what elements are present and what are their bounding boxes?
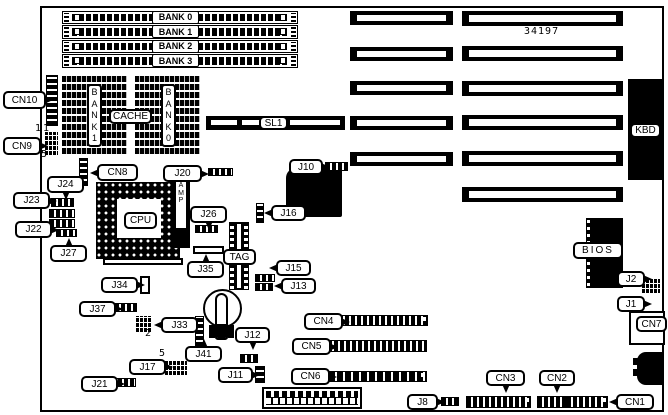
label-text: J20 (174, 168, 190, 179)
isa-slot-channel (469, 85, 616, 92)
label-text: CN5 (301, 341, 321, 352)
label-text: J26 (200, 209, 216, 220)
label-text: CN4 (313, 316, 333, 327)
isa-slot-channel (469, 191, 616, 198)
label-pointer (154, 321, 163, 329)
label-text: J24 (57, 179, 73, 190)
label-text: J15 (285, 263, 301, 274)
simm-slot-bank0: BANK 0 (62, 11, 298, 25)
battery-clamp-right (228, 325, 234, 338)
label-j21: J21 (81, 376, 118, 392)
j35-pins (193, 246, 224, 254)
j20-pins (208, 168, 233, 176)
isa-slot-left-3 (350, 81, 453, 95)
pin-marker-1: 1 (35, 123, 41, 134)
label-pointer (65, 238, 73, 247)
label-pointer (502, 384, 510, 393)
label-cpu: CPU (124, 212, 157, 229)
label-text: J33 (171, 320, 187, 331)
battery-capsule-fill (217, 324, 226, 338)
label-cache: CACHE (109, 109, 152, 124)
simm-edge-pins (291, 56, 296, 66)
pin-marker-5: 5 (159, 348, 165, 359)
isa-slot-channel (357, 15, 446, 21)
label-text: J12 (244, 330, 260, 341)
label-j17: J17 (129, 359, 166, 375)
label-j35: J35 (187, 261, 224, 278)
label-text: J23 (23, 195, 39, 206)
label-sl1: SL1 (259, 116, 288, 130)
label-text: J1 (626, 299, 637, 310)
label-pointer (90, 169, 99, 177)
cache-bank0-label: B A N K 0 (161, 84, 176, 147)
part-number: 34197 (524, 26, 559, 37)
label-j16: J16 (271, 205, 306, 221)
label-pointer (164, 363, 173, 371)
label-cn7: CN7 (636, 316, 667, 332)
isa-slot-left-4 (350, 116, 453, 130)
label-pointer (329, 343, 338, 351)
label-pointer (249, 341, 257, 350)
label-pointer (436, 398, 445, 406)
label-text: CN7 (641, 319, 661, 330)
power-connector (262, 387, 362, 409)
isa-slot-right-1 (462, 11, 623, 26)
label-pointer (609, 398, 618, 406)
j23-pins (49, 209, 75, 218)
label-text: CPU (130, 215, 151, 226)
cn6-pins (328, 371, 427, 382)
motherboard-diagram: B A N K 1 B A N K 0 A M P (0, 0, 668, 415)
isa-slot-right-4 (462, 115, 623, 130)
label-j26: J26 (190, 206, 227, 223)
label-text: CN9 (12, 141, 32, 152)
simm-latch (74, 43, 80, 50)
label-text: J8 (417, 397, 428, 408)
label-pointer (62, 191, 70, 200)
simm-edge-pins (291, 42, 296, 52)
label-text: J21 (91, 379, 107, 390)
label-text: CN8 (107, 167, 127, 178)
isa-slot-right-5 (462, 151, 623, 166)
label-j13: J13 (281, 278, 316, 294)
isa-slot-right-3 (462, 81, 623, 96)
battery-capsule (215, 293, 228, 340)
simm-slot-bank1: BANK 1 (62, 25, 298, 39)
simm-bank-label: BANK 3 (152, 54, 199, 67)
label-text: CN1 (625, 397, 645, 408)
label-pointer (328, 373, 337, 381)
isa-slot-channel (469, 15, 616, 22)
simm-latch (74, 57, 80, 64)
label-cn10: CN10 (3, 91, 46, 109)
isa-slot-right-6 (462, 187, 623, 202)
label-text: SL1 (265, 118, 283, 129)
simm-edge-pins (291, 13, 296, 23)
label-text: J2 (626, 274, 637, 285)
amp-label: A M P (176, 180, 186, 205)
isa-slot-left-5 (350, 152, 453, 166)
label-pointer (341, 318, 350, 326)
label-pointer (643, 300, 652, 308)
isa-slot-channel (357, 156, 446, 162)
battery-clamp-left (209, 325, 215, 338)
label-j15: J15 (276, 260, 311, 276)
pin-marker-1: 1 (43, 123, 49, 134)
label-text: CN3 (495, 373, 515, 384)
simm-slot-bank2: BANK 2 (62, 40, 298, 54)
label-j8: J8 (407, 394, 438, 410)
label-kbd: KBD (630, 123, 661, 138)
label-cn3: CN3 (486, 370, 525, 386)
simm-slot-bank3: BANK 3 (62, 54, 298, 68)
isa-slot-channel (357, 85, 446, 91)
label-text: J37 (89, 304, 105, 315)
isa-slot-left-2 (350, 47, 453, 61)
label-text: CN2 (547, 373, 567, 384)
label-pointer (251, 371, 260, 379)
label-pointer (44, 96, 53, 104)
label-pointer (200, 170, 209, 178)
label-j41: J41 (185, 346, 222, 362)
simm-edge-pins (64, 42, 69, 52)
pin-marker-2: 2 (145, 328, 151, 339)
label-pointer (274, 282, 283, 290)
amp-connector: A M P (172, 180, 190, 248)
label-pointer (116, 380, 125, 388)
j13-pins (255, 283, 273, 291)
simm-edge-pins (64, 27, 69, 37)
label-pointer (50, 226, 59, 234)
label-text: CACHE (113, 111, 148, 122)
label-pointer (136, 281, 145, 289)
label-text: J11 (228, 370, 243, 381)
label-text: BIOS (582, 245, 614, 256)
label-j11: J11 (218, 367, 253, 383)
label-text: J10 (298, 162, 314, 173)
pin-marker-5: 5 (41, 149, 47, 160)
label-pointer (205, 221, 213, 230)
label-text: CN10 (12, 95, 38, 106)
label-text: J17 (139, 362, 155, 373)
label-bios: BIOS (573, 242, 623, 259)
label-text: J35 (197, 264, 213, 275)
label-pointer (269, 264, 278, 272)
label-pointer (200, 339, 208, 348)
label-j27: J27 (50, 245, 87, 262)
label-pointer (114, 305, 123, 313)
label-cn4: CN4 (304, 313, 343, 330)
label-j24: J24 (47, 176, 84, 193)
label-cn8: CN8 (97, 164, 138, 181)
simm-edge-pins (64, 56, 69, 66)
sl1-slot-segment (211, 120, 237, 125)
label-j34: J34 (101, 277, 138, 293)
label-text: J16 (280, 208, 296, 219)
label-text: CN6 (300, 371, 320, 382)
isa-slot-channel (357, 51, 446, 57)
label-pointer (48, 197, 57, 205)
label-j2: J2 (617, 271, 645, 287)
label-j10: J10 (289, 159, 323, 175)
label-pointer (643, 275, 652, 283)
isa-slot-channel (357, 120, 446, 126)
cn4-pins (338, 315, 428, 326)
label-cn2: CN2 (539, 370, 575, 386)
isa-slot-channel (469, 119, 616, 126)
label-j20: J20 (163, 165, 202, 182)
isa-slot-right-2 (462, 46, 623, 61)
simm-edge-pins (291, 27, 296, 37)
cn1-pins (566, 396, 608, 408)
din-keyboard-connector (637, 352, 664, 385)
simm-bank-label: BANK 2 (152, 40, 199, 53)
isa-slot-channel (469, 155, 616, 162)
amp-connector-body (176, 228, 186, 248)
label-j1: J1 (617, 296, 645, 312)
simm-latch (280, 43, 286, 50)
label-text: J27 (60, 248, 76, 259)
label-pointer (202, 254, 210, 263)
simm-latch (280, 28, 286, 35)
label-cn1: CN1 (616, 394, 654, 410)
j27-pins (56, 229, 77, 237)
cn2-pins (537, 396, 566, 408)
j16-pins (256, 203, 264, 223)
simm-latch (74, 28, 80, 35)
label-pointer (321, 163, 330, 171)
label-cn6: CN6 (291, 368, 330, 385)
j15-pins (255, 274, 275, 282)
cache-bank1-label: B A N K 1 (87, 84, 102, 147)
simm-latch (280, 57, 286, 64)
power-connector-sockets (266, 397, 358, 405)
label-text: J34 (111, 280, 127, 291)
label-j37: J37 (79, 301, 116, 317)
label-text: J41 (195, 349, 211, 360)
simm-edge-pins (64, 13, 69, 23)
simm-latch (280, 14, 286, 21)
cn3-pins (466, 396, 531, 408)
label-text: J13 (290, 281, 306, 292)
simm-bank-label: BANK 1 (152, 25, 199, 38)
sl1-slot-segment (290, 120, 340, 125)
simm-bank-label: BANK 0 (152, 11, 199, 24)
label-j23: J23 (13, 192, 50, 209)
label-tag: TAG (223, 249, 256, 265)
isa-slot-left-1 (350, 11, 453, 25)
j12-pins (240, 354, 258, 363)
label-pointer (264, 209, 273, 217)
label-pointer (553, 384, 561, 393)
label-text: KBD (635, 125, 656, 136)
label-j33: J33 (161, 317, 198, 333)
isa-slot-channel (469, 50, 616, 57)
label-text: TAG (230, 252, 250, 263)
label-text: J22 (25, 224, 41, 235)
label-cn5: CN5 (292, 338, 331, 355)
simm-latch (74, 14, 80, 21)
label-j12: J12 (235, 327, 270, 343)
cpu-retention-bar (103, 258, 183, 265)
label-cn9: CN9 (3, 137, 41, 155)
label-j22: J22 (15, 221, 52, 238)
